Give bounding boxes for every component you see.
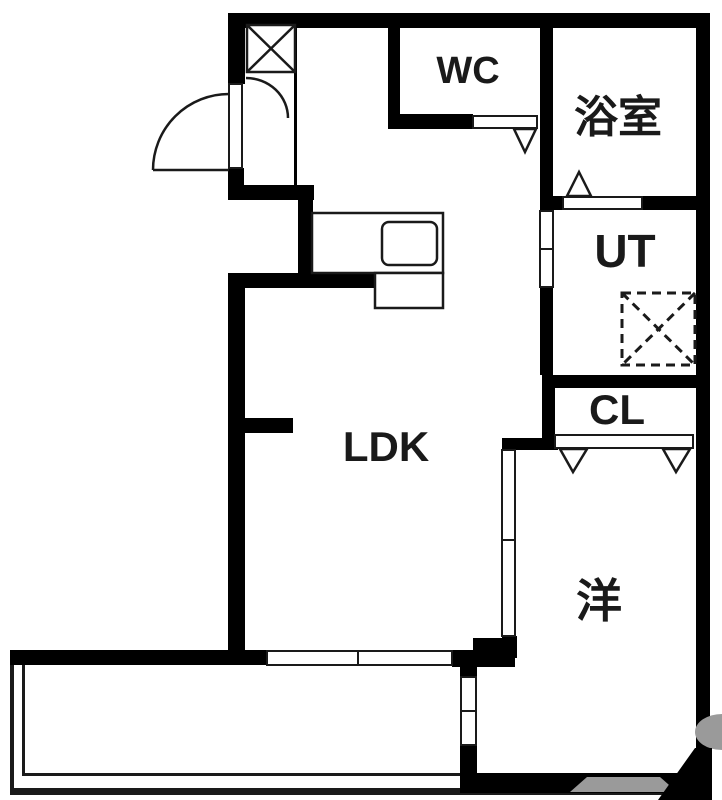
wall-wc-left (388, 25, 400, 129)
wc-label: WC (436, 50, 499, 92)
kitchen-sink (382, 222, 437, 265)
wall-bath-bottom-left (540, 196, 564, 210)
kitchen-counter-lower (375, 273, 443, 308)
wall-right (696, 13, 710, 793)
wc-sliding-door (473, 116, 537, 128)
western-room-label: 洋 (576, 575, 622, 627)
wall-top (230, 13, 710, 28)
wall-window-strip-bottom (460, 745, 477, 777)
utility-label: UT (594, 225, 655, 277)
wall-entrance-left-upper (228, 13, 245, 84)
wall-ut-left-upper (540, 13, 553, 211)
wall-step (473, 638, 515, 667)
ldk-label: LDK (343, 423, 429, 470)
floor-plan: WC 浴室 UT CL LDK 洋 (0, 0, 722, 800)
balcony-inner-bottom-line (22, 773, 460, 776)
bath-label: 浴室 (574, 92, 662, 142)
wall-ldk-stub (245, 418, 293, 433)
wall-wc-bottom (388, 114, 473, 129)
wall-ldk-left (228, 273, 245, 652)
wall-kitchen-bar (228, 273, 375, 288)
balcony-inner-left-line (22, 665, 25, 776)
wall-balcony-top (10, 650, 267, 665)
wall-bath-bottom-right (642, 196, 696, 210)
closet-label: CL (589, 386, 645, 433)
wall-ldk-bottom-right-chunk (452, 650, 477, 667)
balcony-outer-left-line (10, 652, 14, 792)
entrance-door-opening (229, 84, 242, 168)
ldk-western-sliding-door (502, 450, 515, 636)
bath-door (563, 197, 642, 209)
closet-door (555, 435, 693, 448)
wall-ut-left-lower (540, 287, 553, 375)
wall-cl-corner-bar (502, 438, 558, 450)
watermark-arc-bottom (570, 777, 677, 792)
floor-plan-canvas: WC 浴室 UT CL LDK 洋 (0, 0, 722, 800)
ldk-balcony-window (267, 651, 452, 665)
